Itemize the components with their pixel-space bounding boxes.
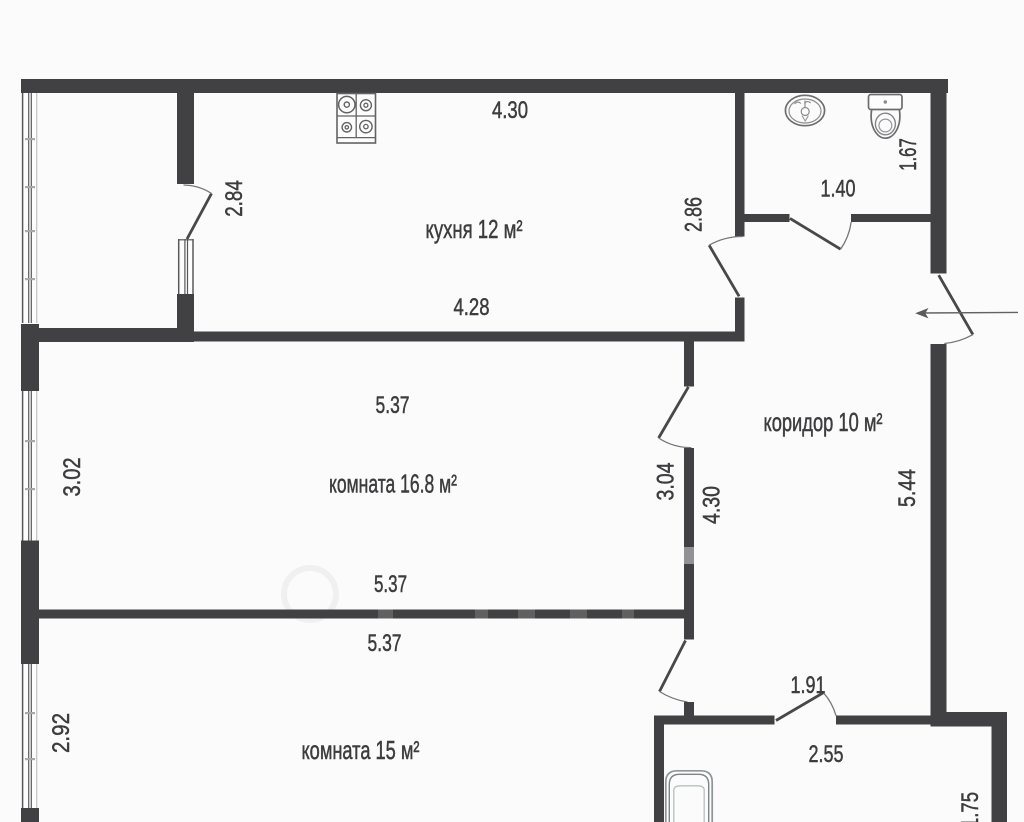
svg-text:3.04: 3.04 [653, 463, 680, 501]
svg-text:2.55: 2.55 [809, 741, 844, 768]
svg-text:2.84: 2.84 [221, 180, 248, 217]
svg-text:2.86: 2.86 [681, 197, 708, 232]
svg-text:кухня 12 м²: кухня 12 м² [426, 214, 523, 244]
svg-text:коридор 10 м²: коридор 10 м² [764, 407, 883, 437]
svg-text:1.40: 1.40 [821, 176, 856, 203]
svg-text:5.37: 5.37 [376, 392, 410, 419]
svg-text:1.91: 1.91 [791, 672, 826, 699]
svg-text:5.37: 5.37 [368, 630, 402, 657]
svg-text:4.28: 4.28 [454, 294, 490, 321]
svg-text:комната 15 м²: комната 15 м² [302, 735, 420, 765]
svg-text:1.67: 1.67 [895, 138, 922, 171]
svg-text:3.02: 3.02 [59, 458, 86, 497]
svg-text:4.30: 4.30 [492, 97, 528, 124]
svg-text:2.92: 2.92 [48, 713, 75, 753]
svg-text:5.44: 5.44 [894, 469, 921, 507]
svg-text:5.37: 5.37 [374, 571, 407, 598]
svg-text:комната 16.8 м²: комната 16.8 м² [329, 469, 457, 499]
svg-text:1.75: 1.75 [957, 792, 984, 822]
svg-text:4.30: 4.30 [699, 486, 726, 524]
